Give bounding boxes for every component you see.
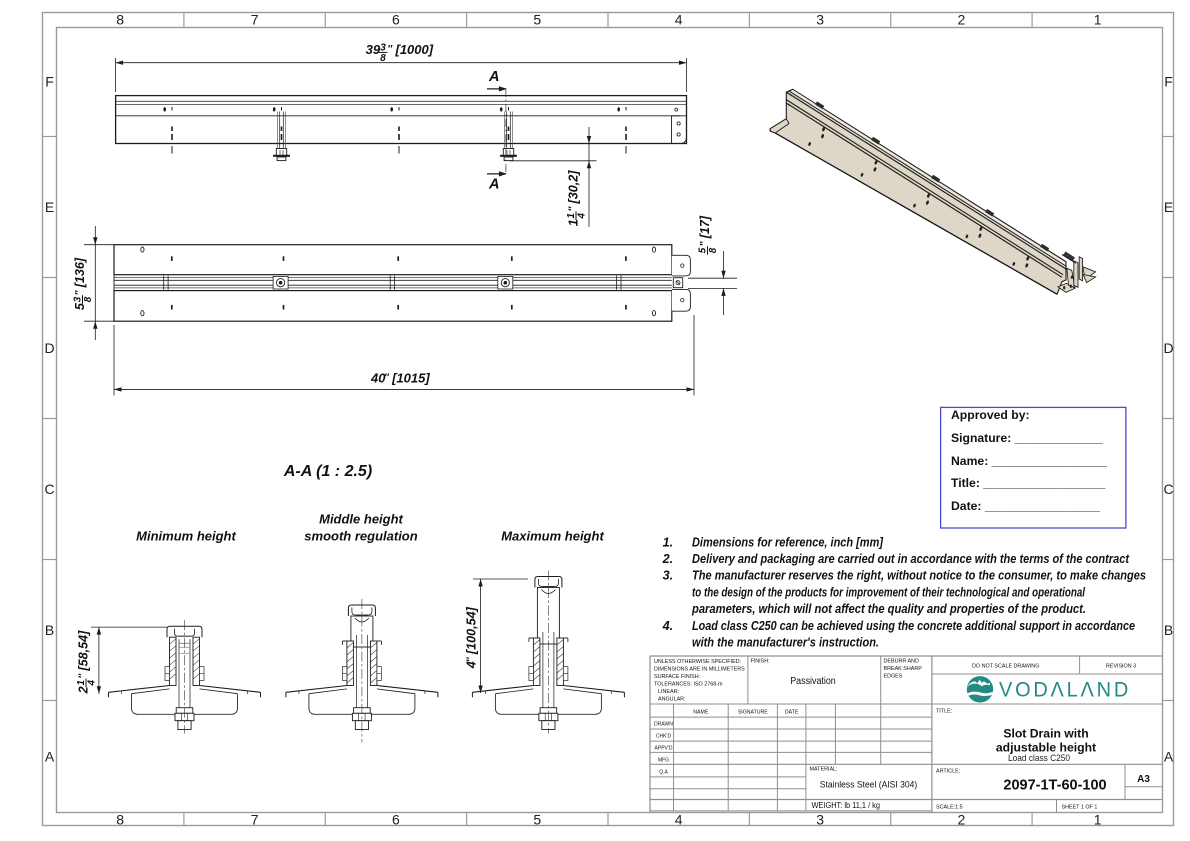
svg-text:UNLESS OTHERWISE SPECIFIED:: UNLESS OTHERWISE SPECIFIED: xyxy=(654,659,741,665)
svg-text:Name: _________________: Name: _________________ xyxy=(951,454,1107,468)
svg-text:DO NOT SCALE DRAWING: DO NOT SCALE DRAWING xyxy=(972,664,1039,670)
svg-text:″: ″ xyxy=(568,205,579,211)
svg-text:3: 3 xyxy=(816,812,824,828)
svg-text:[17]: [17] xyxy=(698,215,712,239)
svg-text:Approved by:: Approved by: xyxy=(951,408,1030,422)
svg-text:B: B xyxy=(1164,622,1173,638)
svg-text:1: 1 xyxy=(567,219,581,226)
svg-text:DRAWN: DRAWN xyxy=(654,722,673,728)
svg-text:8: 8 xyxy=(380,53,386,64)
svg-text:1.: 1. xyxy=(663,535,674,549)
svg-text:2.: 2. xyxy=(662,552,674,566)
svg-text:7: 7 xyxy=(251,12,259,28)
svg-text:WEIGHT: lb 11,1 / kg: WEIGHT: lb 11,1 / kg xyxy=(812,800,881,810)
svg-text:F: F xyxy=(1164,74,1173,90)
svg-text:REVISION 3: REVISION 3 xyxy=(1106,664,1136,670)
svg-text:5: 5 xyxy=(73,302,87,310)
svg-text:C: C xyxy=(1163,481,1173,497)
svg-text:8: 8 xyxy=(708,247,719,253)
svg-text:C: C xyxy=(44,481,54,497)
svg-text:SIGNATURE: SIGNATURE xyxy=(738,710,768,716)
svg-text:NAME: NAME xyxy=(693,710,709,716)
svg-text:parameters, which will not aff: parameters, which will not affect the qu… xyxy=(691,602,1086,616)
svg-text:6: 6 xyxy=(392,812,400,828)
svg-text:E: E xyxy=(45,199,54,215)
svg-text:Minimum height: Minimum height xyxy=(136,529,236,544)
svg-text:8: 8 xyxy=(116,12,124,28)
svg-text:Passivation: Passivation xyxy=(790,676,836,687)
svg-text:B: B xyxy=(45,622,54,638)
svg-text:″: ″ xyxy=(384,373,390,384)
svg-text:A: A xyxy=(488,69,499,85)
svg-text:Date: _________________: Date: _________________ xyxy=(951,499,1100,513)
svg-text:″: ″ xyxy=(699,240,710,246)
svg-text:3.: 3. xyxy=(663,569,674,583)
svg-text:3: 3 xyxy=(816,12,824,28)
svg-text:VODΛLΛND: VODΛLΛND xyxy=(999,678,1131,702)
svg-text:MFG: MFG xyxy=(658,758,669,764)
svg-text:[100,54]: [100,54] xyxy=(465,606,479,655)
svg-text:2: 2 xyxy=(958,12,966,28)
svg-text:Q.A: Q.A xyxy=(659,770,668,776)
svg-text:D: D xyxy=(44,340,54,356)
svg-text:[58,54]: [58,54] xyxy=(77,630,91,672)
svg-text:BREAK SHARP: BREAK SHARP xyxy=(884,666,923,672)
svg-text:Middle height: Middle height xyxy=(319,512,403,527)
svg-text:Stainless Steel (AISI 304): Stainless Steel (AISI 304) xyxy=(820,780,918,791)
svg-text:5: 5 xyxy=(533,12,541,28)
svg-text:FINISH:: FINISH: xyxy=(751,659,770,665)
svg-text:A: A xyxy=(488,177,499,193)
svg-text:Delivery and packaging are car: Delivery and packaging are carried out i… xyxy=(692,552,1130,566)
svg-text:DIMENSIONS ARE IN MILLIMETERS: DIMENSIONS ARE IN MILLIMETERS xyxy=(654,667,745,673)
svg-text:Dimensions for reference, inch: Dimensions for reference, inch [mm] xyxy=(692,535,884,549)
svg-text:F: F xyxy=(45,74,54,90)
svg-text:SCALE:1:5: SCALE:1:5 xyxy=(936,805,963,811)
svg-text:Title: __________________: Title: __________________ xyxy=(951,476,1106,490)
svg-text:5: 5 xyxy=(533,812,541,828)
svg-text:TOLERANCES: ISO 2768-m: TOLERANCES: ISO 2768-m xyxy=(654,682,723,688)
svg-text:2: 2 xyxy=(77,686,91,694)
svg-text:4: 4 xyxy=(675,12,683,28)
svg-text:[1000]: [1000] xyxy=(395,42,434,57)
svg-text:A: A xyxy=(45,749,55,765)
svg-text:Maximum height: Maximum height xyxy=(501,529,604,544)
svg-text:Load class C250 can be achieve: Load class C250 can be achieved using th… xyxy=(692,619,1135,633)
svg-text:E: E xyxy=(1164,199,1173,215)
svg-text:A-A (1 : 2.5): A-A (1 : 2.5) xyxy=(283,463,372,480)
svg-text:to the design of the products: to the design of the products for improv… xyxy=(692,585,1085,599)
svg-text:4: 4 xyxy=(675,812,683,828)
svg-text:ARTICLE:: ARTICLE: xyxy=(936,769,960,775)
svg-text:SURFACE FINISH:: SURFACE FINISH: xyxy=(654,674,700,680)
svg-text:4.: 4. xyxy=(662,619,674,633)
svg-text:Slot Drain with: Slot Drain with xyxy=(1003,727,1088,741)
svg-text:Signature: _____________: Signature: _____________ xyxy=(951,431,1103,445)
svg-text:MATERIAL:: MATERIAL: xyxy=(810,767,838,773)
svg-text:7: 7 xyxy=(251,812,259,828)
svg-text:″: ″ xyxy=(387,44,393,55)
svg-text:with the manufacturer's instru: with the manufacturer's instruction. xyxy=(692,636,879,650)
svg-text:TITLE:: TITLE: xyxy=(936,709,952,715)
svg-text:A: A xyxy=(1164,749,1174,765)
svg-text:1: 1 xyxy=(1094,12,1102,28)
svg-text:Load class C250: Load class C250 xyxy=(1008,753,1070,763)
svg-text:8: 8 xyxy=(116,812,124,828)
svg-text:[30,2]: [30,2] xyxy=(567,170,581,205)
svg-text:2097-1T-60-100: 2097-1T-60-100 xyxy=(1003,778,1106,794)
svg-text:DATE: DATE xyxy=(785,710,799,716)
svg-text:″: ″ xyxy=(74,289,85,295)
svg-text:D: D xyxy=(1163,340,1173,356)
svg-text:39: 39 xyxy=(366,42,381,57)
svg-text:6: 6 xyxy=(392,12,400,28)
svg-text:APPV'D: APPV'D xyxy=(655,746,673,752)
svg-text:1: 1 xyxy=(1094,812,1102,828)
svg-text:ANGULAR:: ANGULAR: xyxy=(658,697,686,703)
svg-text:4: 4 xyxy=(86,680,97,687)
svg-text:LINEAR:: LINEAR: xyxy=(658,689,679,695)
svg-text:″: ″ xyxy=(78,673,89,679)
svg-text:4: 4 xyxy=(576,212,587,219)
svg-text:[136]: [136] xyxy=(73,257,87,288)
svg-text:DEBURR AND: DEBURR AND xyxy=(884,659,919,665)
svg-text:smooth regulation: smooth regulation xyxy=(304,529,417,544)
svg-text:The manufacturer reserves the: The manufacturer reserves the right, wit… xyxy=(692,569,1146,583)
svg-text:[1015]: [1015] xyxy=(391,371,430,386)
svg-text:8: 8 xyxy=(83,296,94,302)
svg-text:A3: A3 xyxy=(1137,774,1150,785)
svg-text:EDGES: EDGES xyxy=(884,674,903,680)
svg-text:2: 2 xyxy=(958,812,966,828)
svg-text:SHEET 1 OF 1: SHEET 1 OF 1 xyxy=(1062,805,1098,811)
svg-text:″: ″ xyxy=(466,656,477,662)
svg-text:CHK'D: CHK'D xyxy=(656,734,672,740)
